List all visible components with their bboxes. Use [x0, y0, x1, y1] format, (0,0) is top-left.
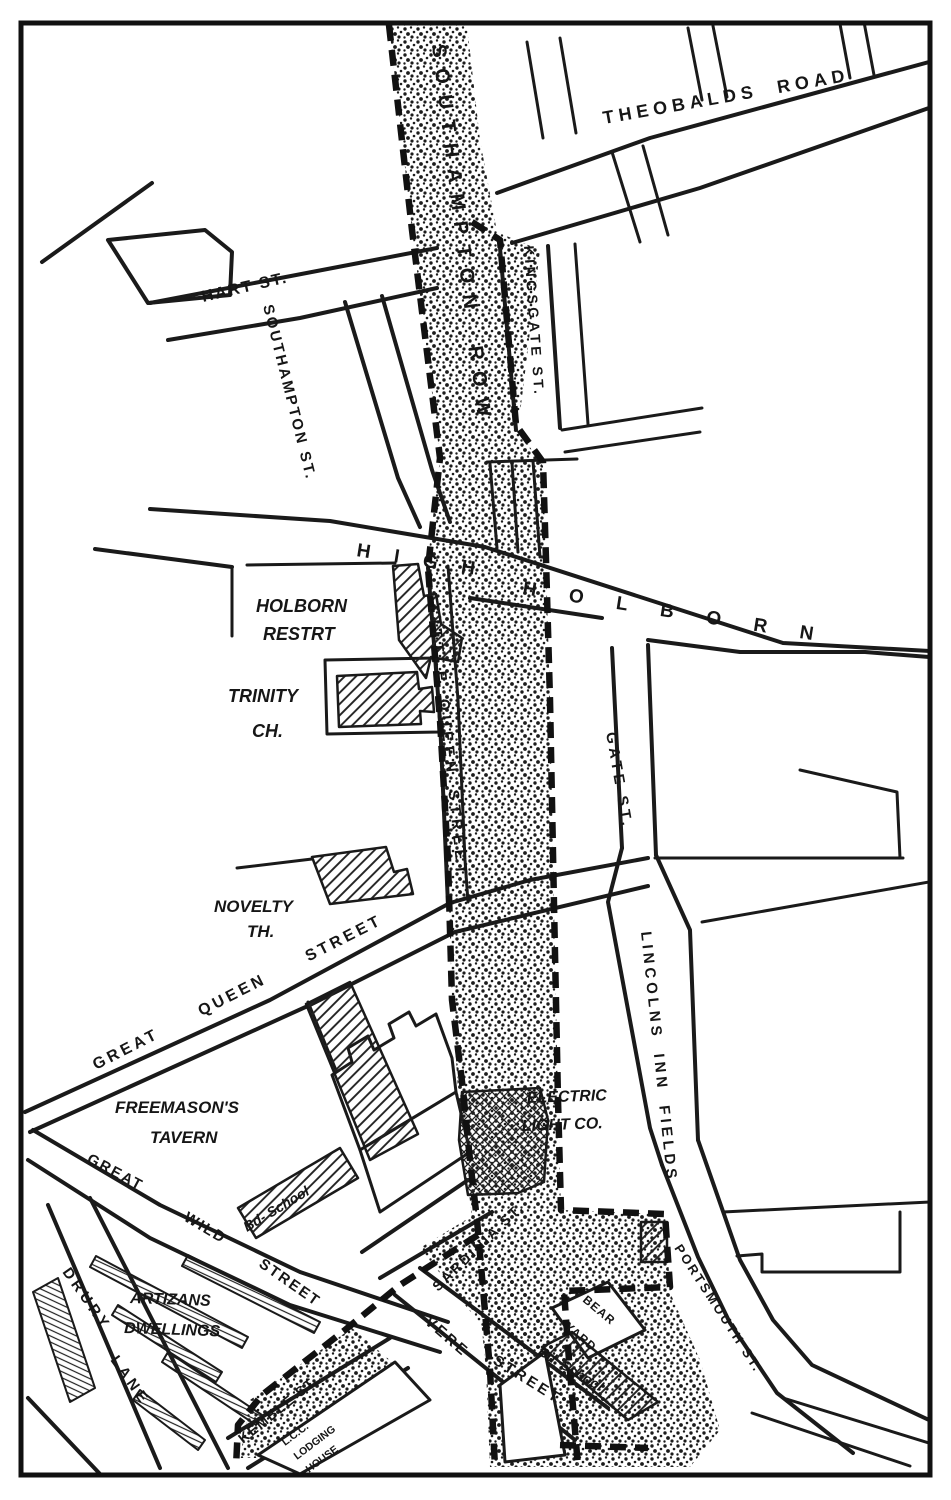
- label-holborn-restrt-1: HOLBORN: [256, 596, 348, 616]
- label-freemasons-tavern-2: TAVERN: [150, 1128, 218, 1147]
- label-novelty-th-1: NOVELTY: [214, 897, 295, 916]
- label-holborn-restrt-2: RESTRT: [263, 624, 337, 644]
- label-trinity-ch-2: CH.: [252, 721, 283, 741]
- map-page: THEOBALDS ROAD SOUTHAMPTON ROW HART ST. …: [0, 0, 951, 1500]
- label-freemasons-tavern-1: FREEMASON'S: [115, 1098, 240, 1117]
- label-novelty-th-2: TH.: [247, 922, 274, 941]
- label-electric-light-co-1: ELECTRIC: [527, 1087, 608, 1107]
- label-artizans-2: DWELLINGS: [124, 1320, 221, 1340]
- label-electric-light-co-2: LIGHT CO.: [522, 1115, 603, 1135]
- street-map: THEOBALDS ROAD SOUTHAMPTON ROW HART ST. …: [0, 0, 951, 1500]
- label-artizans-1: ARTIZANS: [129, 1290, 211, 1310]
- label-trinity-ch-1: TRINITY: [228, 686, 300, 706]
